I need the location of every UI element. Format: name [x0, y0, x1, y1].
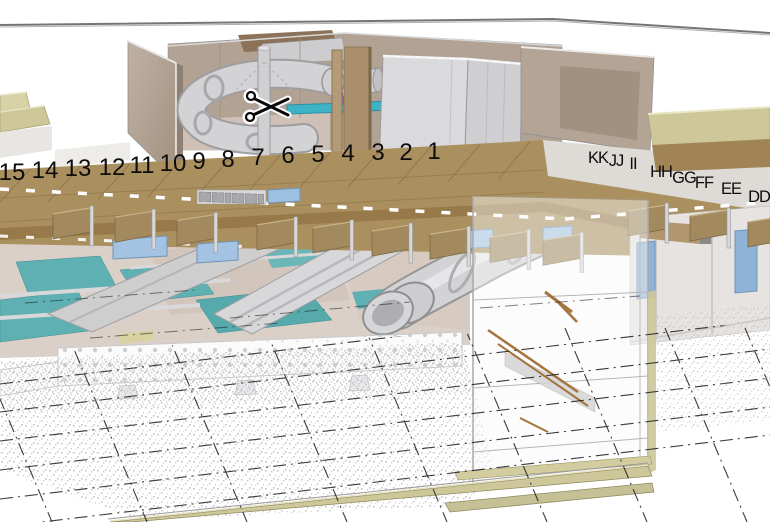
grid-number-label: 12: [99, 154, 126, 181]
grid-number-label: 14: [32, 157, 59, 184]
grid-letter-label: DD: [748, 188, 770, 206]
grid-number-label: 11: [130, 152, 155, 179]
grid-letter-label: KK: [588, 149, 609, 167]
grid-letter-label: GG: [672, 169, 696, 187]
grid-number-label: 2: [399, 139, 412, 166]
model-viewport[interactable]: 151413121110987654321 KKJJIIHHGGFFEEDD: [0, 0, 770, 522]
grid-number-label: 4: [341, 140, 354, 167]
grid-number-label: 1: [427, 138, 440, 165]
grid-letter-label: JJ: [609, 152, 624, 170]
grid-letter-label: FF: [695, 174, 714, 192]
grid-number-label: 13: [65, 155, 92, 182]
grid-number-label: 9: [192, 148, 205, 175]
grid-number-label: 6: [281, 142, 294, 169]
grid-number-label: 15: [0, 159, 25, 186]
grid-number-label: 7: [251, 144, 264, 171]
grid-letter-label: EE: [721, 180, 742, 198]
grid-letter-label: HH: [650, 163, 672, 181]
grid-number-label: 5: [311, 141, 324, 168]
grid-letter-label: II: [629, 155, 637, 173]
grid-number-label: 10: [160, 150, 187, 177]
right-wall-panel: [521, 47, 654, 152]
stair-shaft: [473, 196, 648, 488]
louver-strip: [197, 190, 266, 204]
grid-number-label: 3: [371, 139, 384, 166]
model-scene[interactable]: 151413121110987654321 KKJJIIHHGGFFEEDD: [0, 0, 770, 522]
grid-number-label: 8: [221, 146, 234, 173]
